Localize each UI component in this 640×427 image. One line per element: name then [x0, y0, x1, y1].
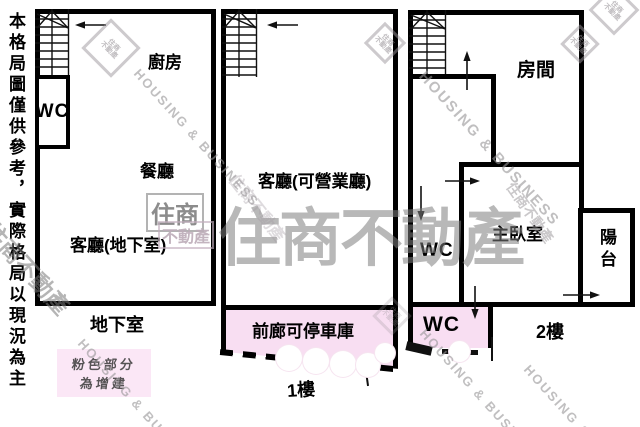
erased-line-remnant — [491, 337, 493, 361]
whiteout-blob — [329, 350, 357, 378]
basement-living-label: 客廳(地下室) — [70, 231, 166, 256]
wc-door-down-arrow — [412, 184, 430, 222]
disclaimer-text: 本格局圖僅供參考，實際格局以現況為主 — [3, 12, 28, 416]
balcony-door-right-arrow — [561, 286, 601, 304]
basement-floor-label: 地下室 — [90, 311, 144, 337]
balcony-label: 陽台 — [594, 228, 619, 272]
diamond-text-bottom: 不動產 — [602, 3, 622, 23]
second-floor-wc-label: WC — [420, 240, 454, 262]
whiteout-blob — [302, 347, 330, 375]
basement-stairs-icon — [35, 9, 70, 76]
basement-stairs-direction-arrow — [74, 19, 108, 31]
whiteout-blob — [275, 344, 303, 372]
extension-note-line1: 粉色部分 — [71, 354, 137, 373]
second-floor-stairs-icon — [409, 10, 447, 75]
whiteout-blob — [448, 340, 471, 363]
second-floor-label: 2樓 — [536, 318, 564, 344]
master-bedroom-label: 主臥室 — [492, 220, 543, 245]
first-floor-living-label: 客廳(可營業廳) — [258, 167, 371, 192]
wall-below-stairs — [408, 74, 496, 79]
extension-note-line2: 為增建 — [79, 373, 129, 392]
extension-wc-label: WC — [423, 313, 460, 337]
basement-wc-label: WC — [36, 101, 70, 123]
brand-diamond-watermark: 住商 不動產 — [589, 0, 640, 35]
wall-master-top — [459, 162, 583, 167]
floorplan-image: 本格局圖僅供參考，實際格局以現況為主 WC 廚房 餐廳 客廳(地下室) 地下室 … — [0, 0, 640, 427]
master-door-right-arrow — [443, 172, 481, 190]
garage-label: 前廊可停車庫 — [252, 317, 354, 342]
stairs-up-arrow — [458, 50, 476, 92]
extension-wc-down-arrow — [466, 284, 484, 320]
room-label: 房間 — [517, 55, 555, 82]
diamond-text-top: 住商 — [609, 0, 624, 15]
diagonal-watermark-en: HOUSING & BUSINESS — [521, 362, 640, 427]
first-floor-label: 1樓 — [286, 375, 316, 403]
first-floor-stairs-icon — [222, 9, 258, 77]
kitchen-label: 廚房 — [148, 48, 182, 73]
basement-wc-room: WC — [35, 75, 70, 149]
dining-label: 餐廳 — [140, 157, 174, 182]
extension-note: 粉色部分 為增建 — [57, 349, 151, 397]
wall-room-left — [491, 74, 496, 167]
whiteout-blob — [374, 342, 396, 364]
first-floor-stairs-direction-arrow — [266, 19, 300, 31]
